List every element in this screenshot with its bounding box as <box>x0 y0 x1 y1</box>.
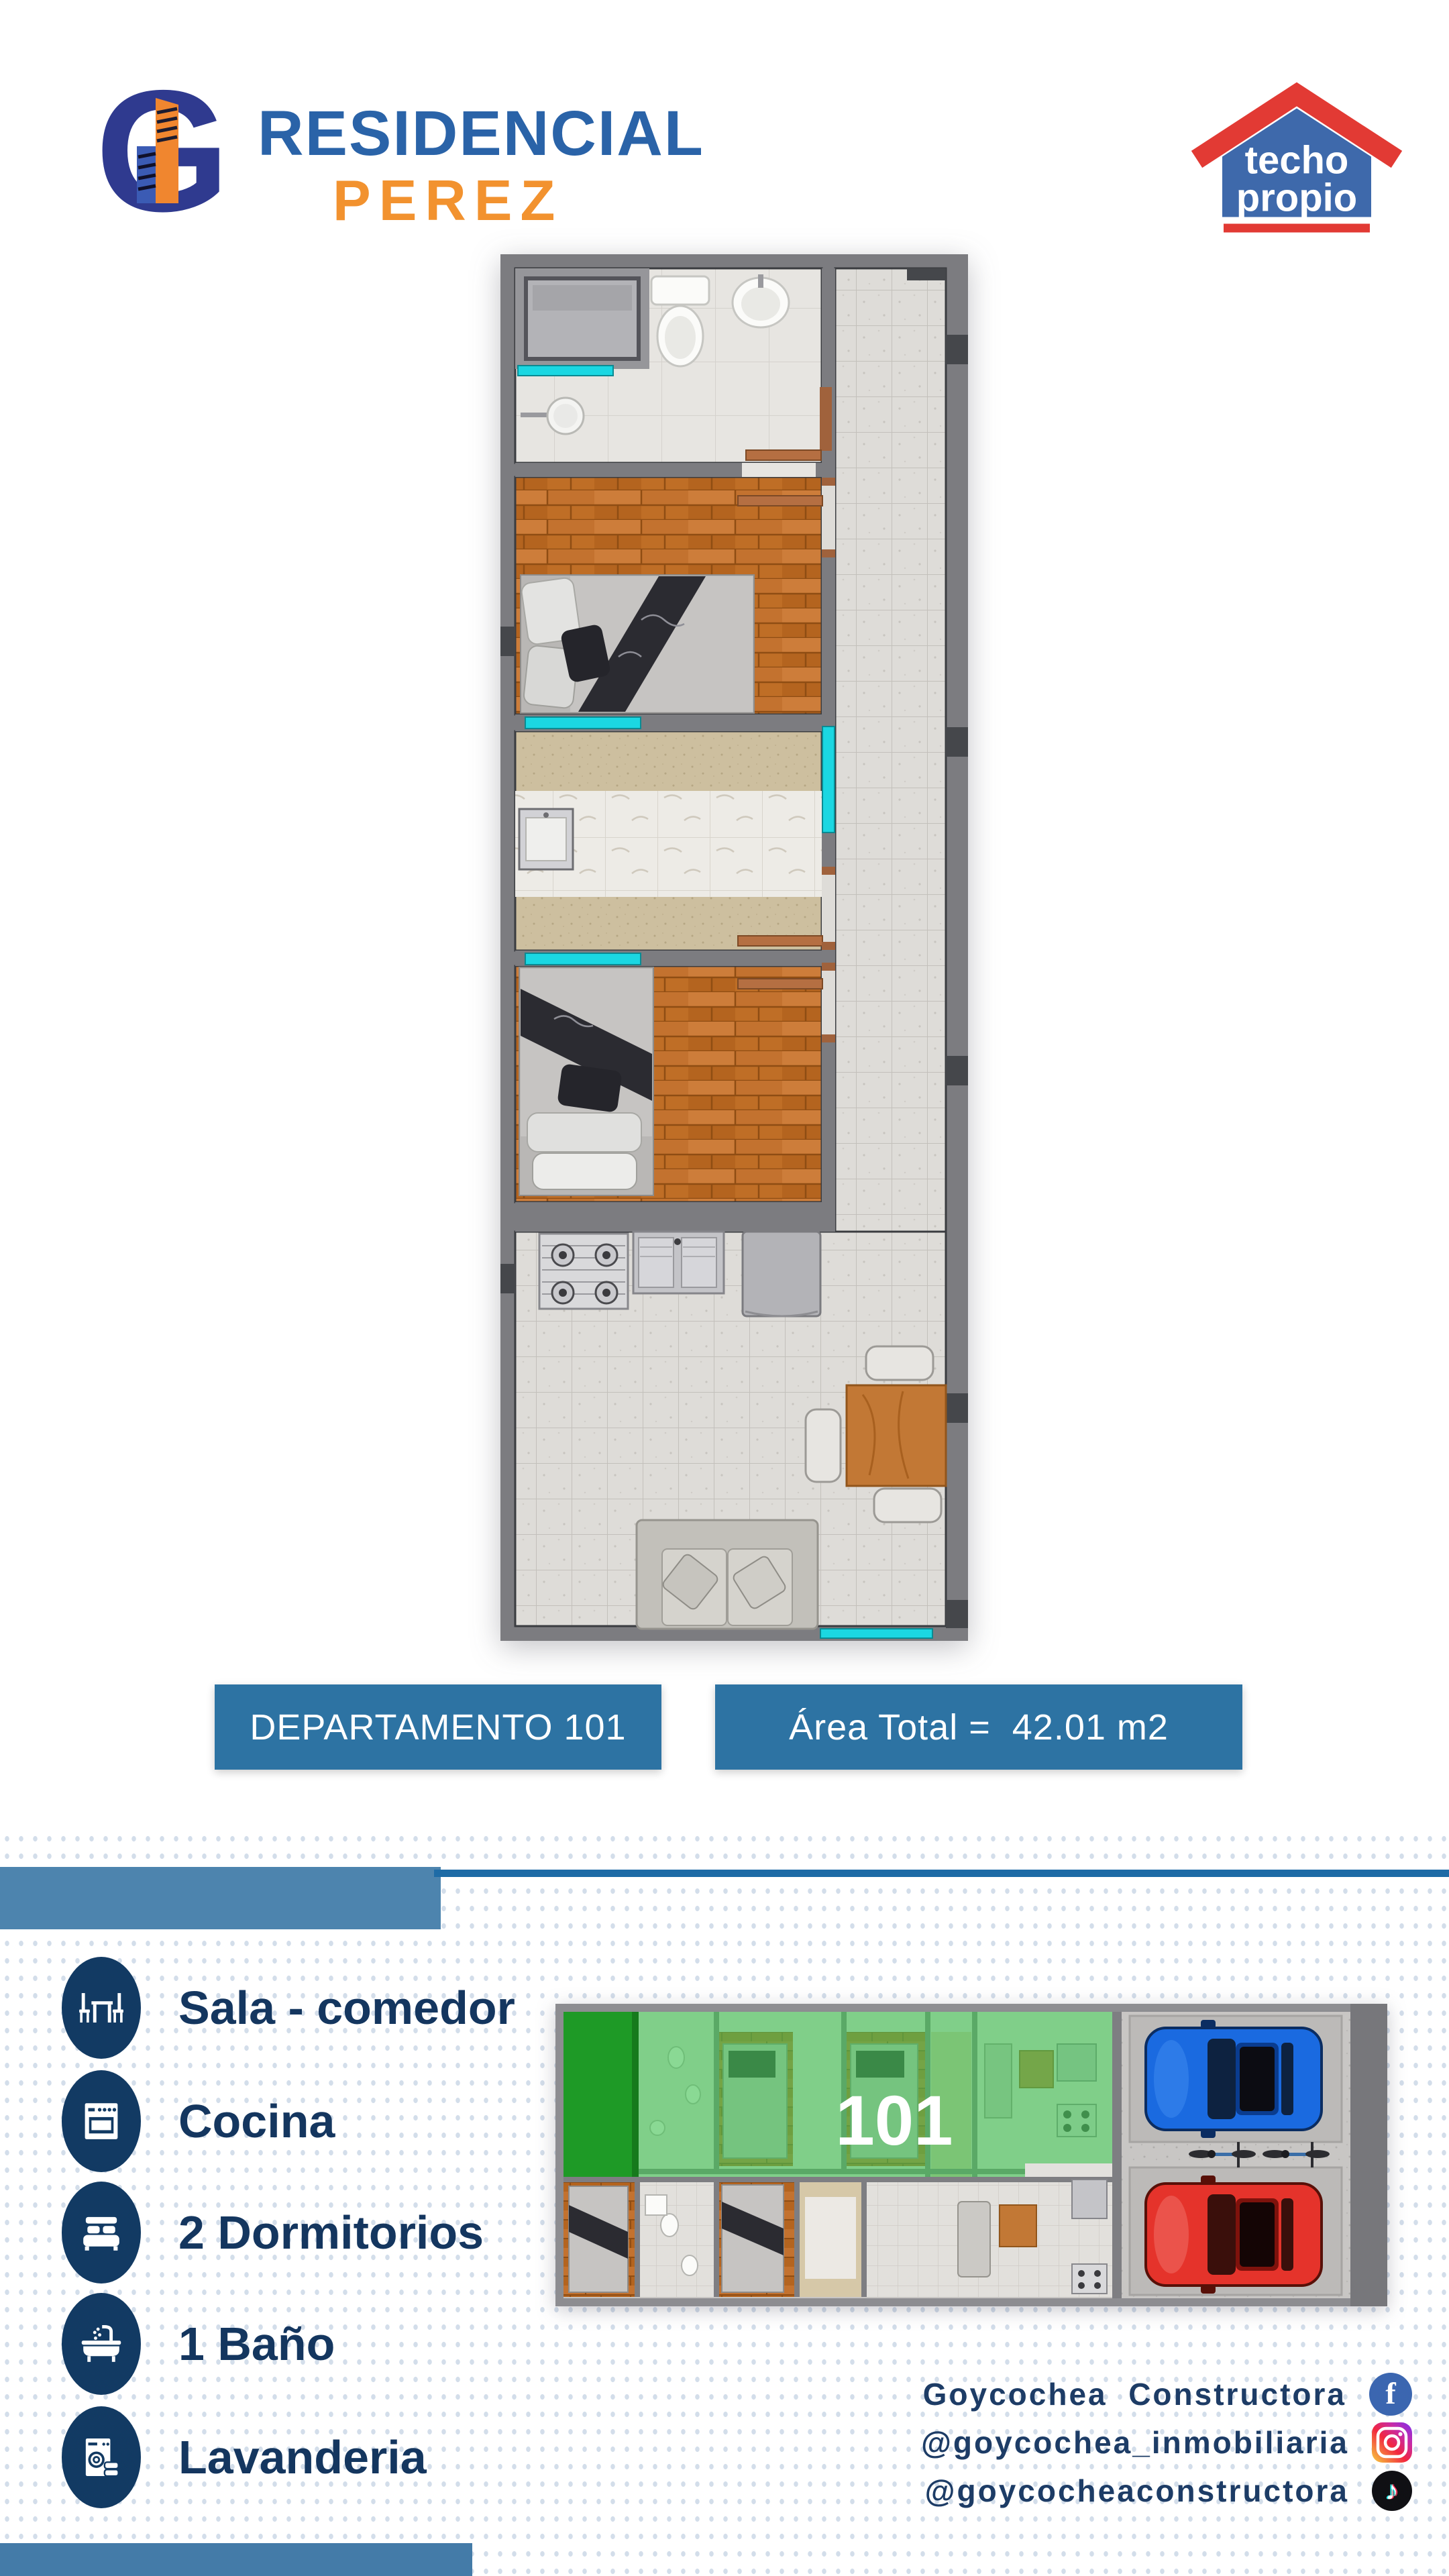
brand-header: G RESIDENCIAL PEREZ <box>99 64 704 229</box>
dining-table <box>847 1385 946 1486</box>
total-area-plate: Área Total = 42.01 m2 <box>715 1684 1242 1770</box>
instagram-handle[interactable]: @goycochea_inmobiliaria <box>921 2424 1349 2461</box>
dining-table-icon <box>62 1957 141 2059</box>
badge-baseline <box>1224 224 1370 233</box>
brand-title-line1: RESIDENCIAL <box>258 102 704 166</box>
tiktok-icon[interactable]: ♪ <box>1372 2471 1412 2511</box>
amenity-label: 1 Baño <box>178 2317 335 2371</box>
propio-word: propio <box>1236 176 1357 220</box>
total-area-label: Área Total = 42.01 m2 <box>789 1707 1169 1748</box>
fridge <box>743 1232 820 1316</box>
department-101-label: DEPARTAMENTO 101 <box>250 1707 626 1748</box>
social-facebook-row[interactable]: Goycochea Constructora f <box>923 2372 1412 2416</box>
department-101-plate: DEPARTAMENTO 101 <box>215 1684 661 1770</box>
bed-icon <box>62 2182 141 2284</box>
amenity-label: Cocina <box>178 2094 335 2148</box>
flyer-page: G RESIDENCIAL PEREZ <box>0 0 1449 2576</box>
garden <box>563 2012 639 2178</box>
amenity-cocina: Cocina <box>62 2070 335 2172</box>
laundry-closet <box>515 268 649 369</box>
site-right-wall <box>1350 2004 1387 2306</box>
amenity-label: Sala - comedor <box>178 1981 515 2035</box>
unit-101-label: 101 <box>835 2082 953 2160</box>
patio-sink <box>519 809 573 869</box>
bathtub-icon <box>62 2293 141 2395</box>
instagram-icon[interactable] <box>1372 2422 1412 2463</box>
stove-icon <box>62 2070 141 2172</box>
amenity-dormitorios: 2 Dormitorios <box>62 2182 484 2284</box>
facebook-handle[interactable]: Goycochea Constructora <box>923 2376 1346 2412</box>
social-tiktok-row[interactable]: @goycocheaconstructora ♪ <box>925 2469 1412 2513</box>
tiktok-handle[interactable]: @goycocheaconstructora <box>925 2473 1349 2509</box>
apartment-floor-plan <box>500 254 968 1641</box>
bedroom1-bed <box>521 575 754 713</box>
corridor-floor <box>835 268 946 1232</box>
amenity-lavanderia: Lavanderia <box>62 2406 427 2508</box>
amenity-bano: 1 Baño <box>62 2293 335 2395</box>
amenity-sala-comedor: Sala - comedor <box>62 1957 515 2059</box>
divider-band-dark <box>434 1870 1449 1877</box>
building-g-monogram-icon: G <box>99 64 227 227</box>
techo-propio-badge: techo propio <box>1189 78 1405 237</box>
washing-machine-icon <box>62 2406 141 2508</box>
red-car <box>1146 2176 1322 2294</box>
brand-title-line2: PEREZ <box>333 172 704 229</box>
sofa <box>637 1520 818 1629</box>
social-instagram-row[interactable]: @goycochea_inmobiliaria <box>921 2420 1412 2465</box>
facebook-icon[interactable]: f <box>1369 2373 1412 2416</box>
building-site-plan: 101 <box>555 2004 1387 2306</box>
toilet-tank <box>651 276 709 305</box>
bedroom2-bed <box>519 967 653 1195</box>
bottom-accent-bar <box>0 2543 472 2576</box>
blue-car <box>1146 2020 1322 2138</box>
amenity-label: Lavanderia <box>178 2430 427 2484</box>
amenity-label: 2 Dormitorios <box>178 2206 484 2259</box>
unit-102-rooms <box>563 2180 1112 2297</box>
brand-title: RESIDENCIAL PEREZ <box>258 102 704 229</box>
divider-band-light <box>0 1867 441 1929</box>
